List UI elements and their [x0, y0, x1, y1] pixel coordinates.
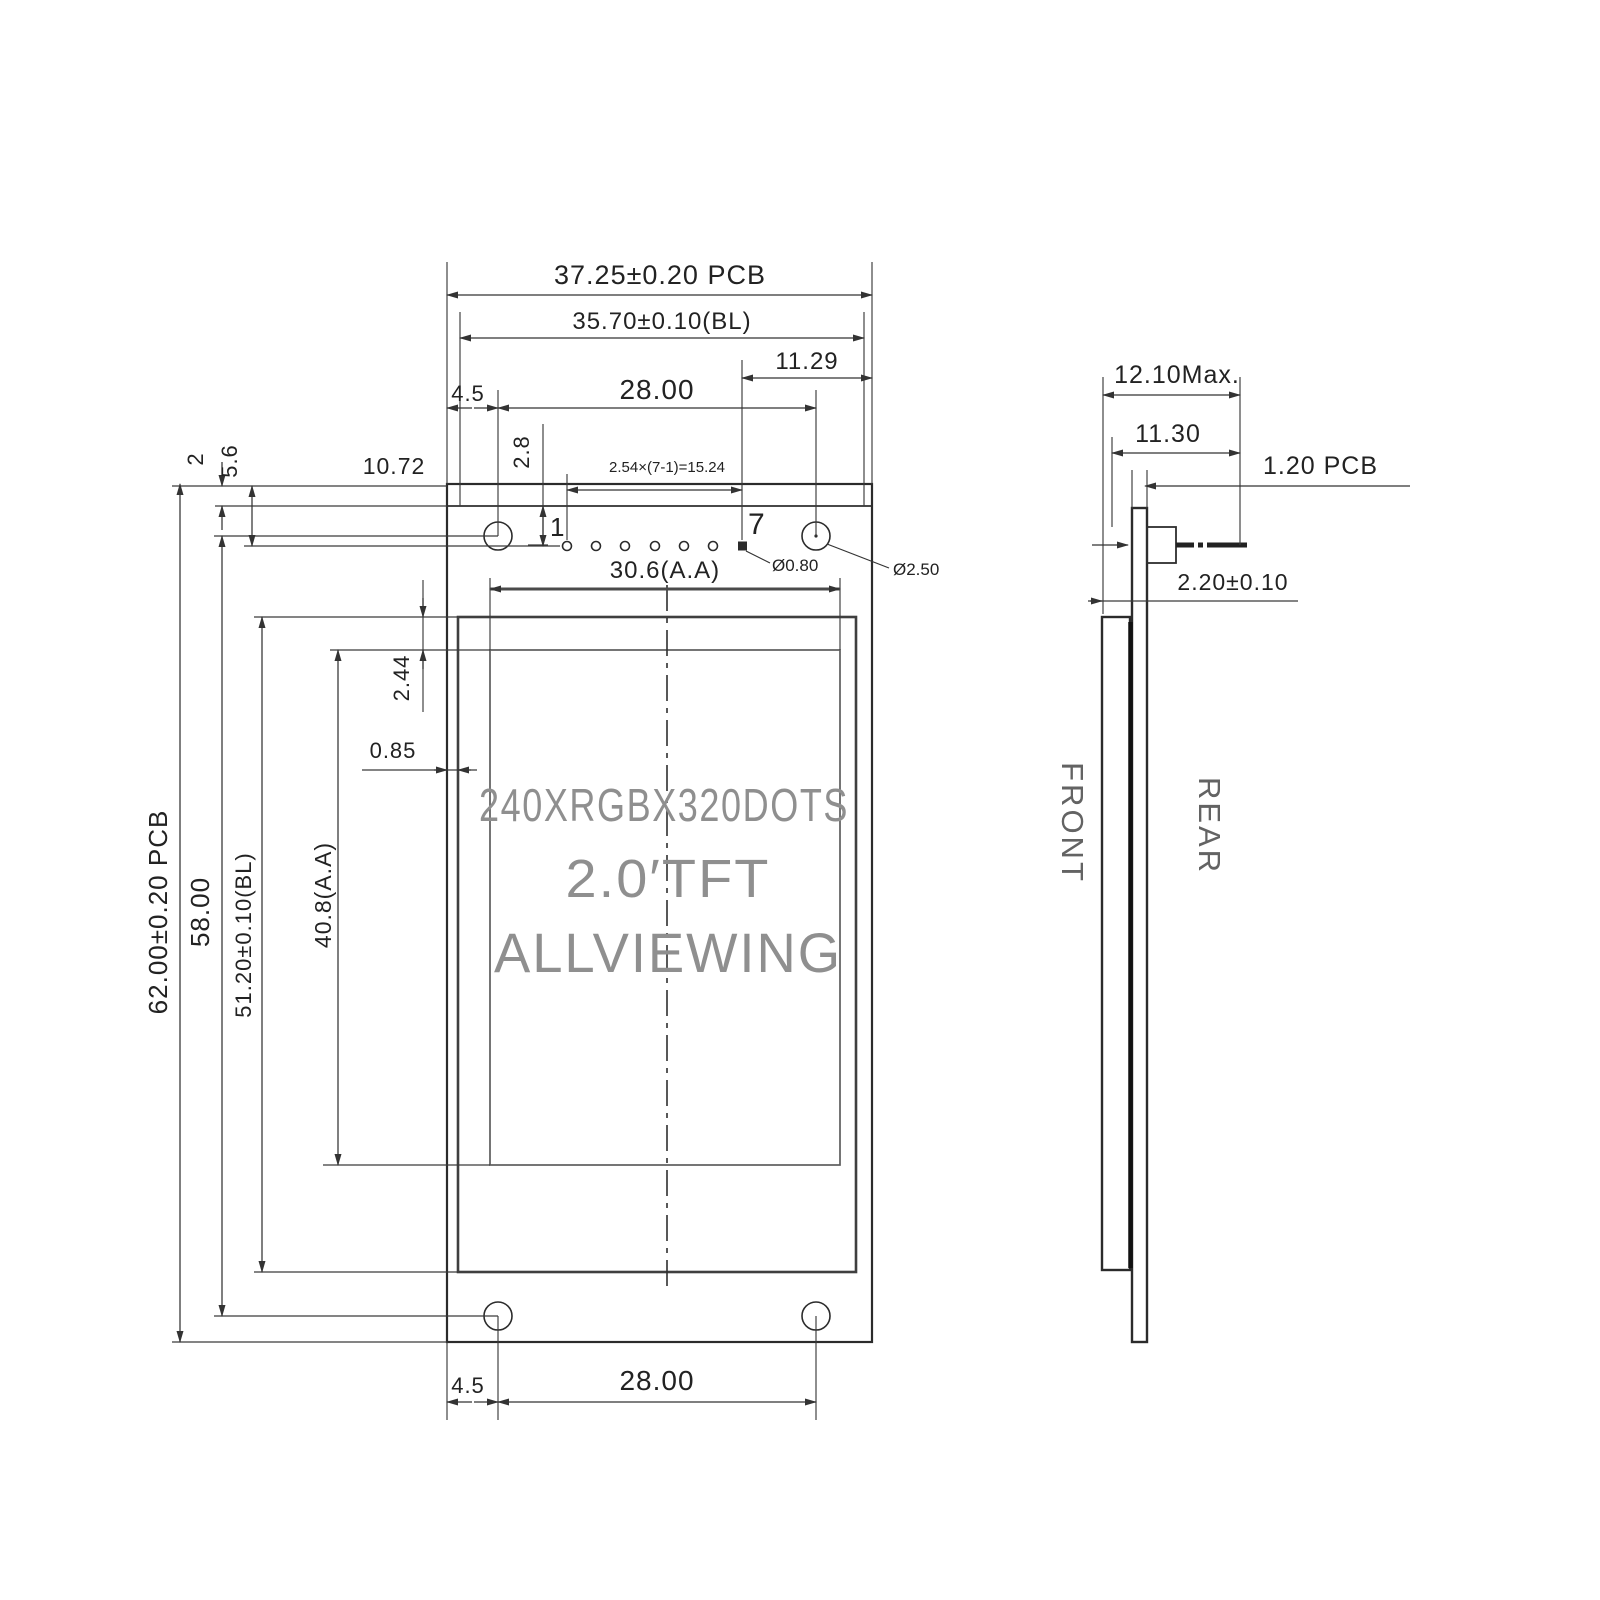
dim-panel-thickness-label: 2.20±0.10 [1177, 569, 1288, 595]
mechanical-drawing-page: 37.25±0.20 PCB 35.70±0.10(BL) 28.00 11.2… [0, 0, 1600, 1600]
rear-side-label: REAR [1192, 777, 1227, 875]
pcb-profile [1132, 508, 1147, 1342]
dim-hole-spacing-left-label: 58.00 [185, 877, 215, 947]
connector-profile [1147, 527, 1247, 563]
side-view: 12.10Max. 11.30 1.20 PCB 2.20±0.10 FRONT… [1055, 361, 1410, 1342]
dim-bezel-offset-label: 2.44 [389, 655, 414, 702]
display-viewing-text: ALLVIEWING [494, 921, 842, 984]
display-silk-text: 240XRGBX320DOTS 2.0′TFT ALLVIEWING [479, 779, 849, 984]
dim-hole-spacing-bottom-label: 28.00 [619, 1365, 694, 1396]
dim-top-margin-label: 2 [183, 452, 208, 465]
dim-aa-width-label: 30.6(A.A) [610, 557, 720, 584]
dim-hole-spacing-top-label: 28.00 [619, 374, 694, 405]
dim-left-offset-top-label: 4.5 [451, 381, 485, 406]
dim-pin-pitch-label: 2.54×(7-1)=15.24 [609, 459, 725, 476]
pin-row [563, 542, 748, 551]
pin-hole-diameter-label: Ø0.80 [772, 556, 818, 575]
dim-edge-to-pin1-label: 10.72 [363, 453, 426, 479]
mount-hole-diameter-label: Ø2.50 [893, 560, 939, 579]
dim-bl-width-label: 35.70±0.10(BL) [572, 308, 751, 335]
pcb-outline [447, 484, 872, 1342]
dim-bl-height-label: 51.20±0.10(BL) [231, 852, 256, 1018]
front-view: 37.25±0.20 PCB 35.70±0.10(BL) 28.00 11.2… [143, 260, 939, 1420]
dim-edge-gap-label: 0.85 [370, 738, 417, 763]
dim-pcb-thickness-label: 1.20 PCB [1263, 452, 1378, 480]
dim-module-depth-label: 11.30 [1135, 420, 1201, 448]
dim-pcb-height-label: 62.00±0.20 PCB [143, 810, 173, 1015]
display-size-text: 2.0′TFT [566, 849, 771, 909]
front-glass-profile [1102, 617, 1130, 1270]
dim-total-depth-label: 12.10Max. [1114, 361, 1240, 389]
dim-left-offset-bottom-label: 4.5 [451, 1373, 485, 1398]
dim-pin-col-offset-label: 2.8 [509, 435, 534, 469]
dim-pcb-width-label: 37.25±0.20 PCB [554, 260, 766, 290]
pin1-label: 1 [550, 512, 564, 542]
front-side-label: FRONT [1055, 762, 1090, 884]
dim-pin-row-offset-label: 5.6 [217, 444, 242, 478]
dim-right-offset-label: 11.29 [775, 348, 838, 375]
dim-aa-height-label: 40.8(A.A) [310, 842, 336, 948]
pin7-label: 7 [748, 508, 765, 541]
tft-module-outline-drawing: 37.25±0.20 PCB 35.70±0.10(BL) 28.00 11.2… [0, 0, 1600, 1600]
display-resolution-text: 240XRGBX320DOTS [479, 779, 849, 831]
